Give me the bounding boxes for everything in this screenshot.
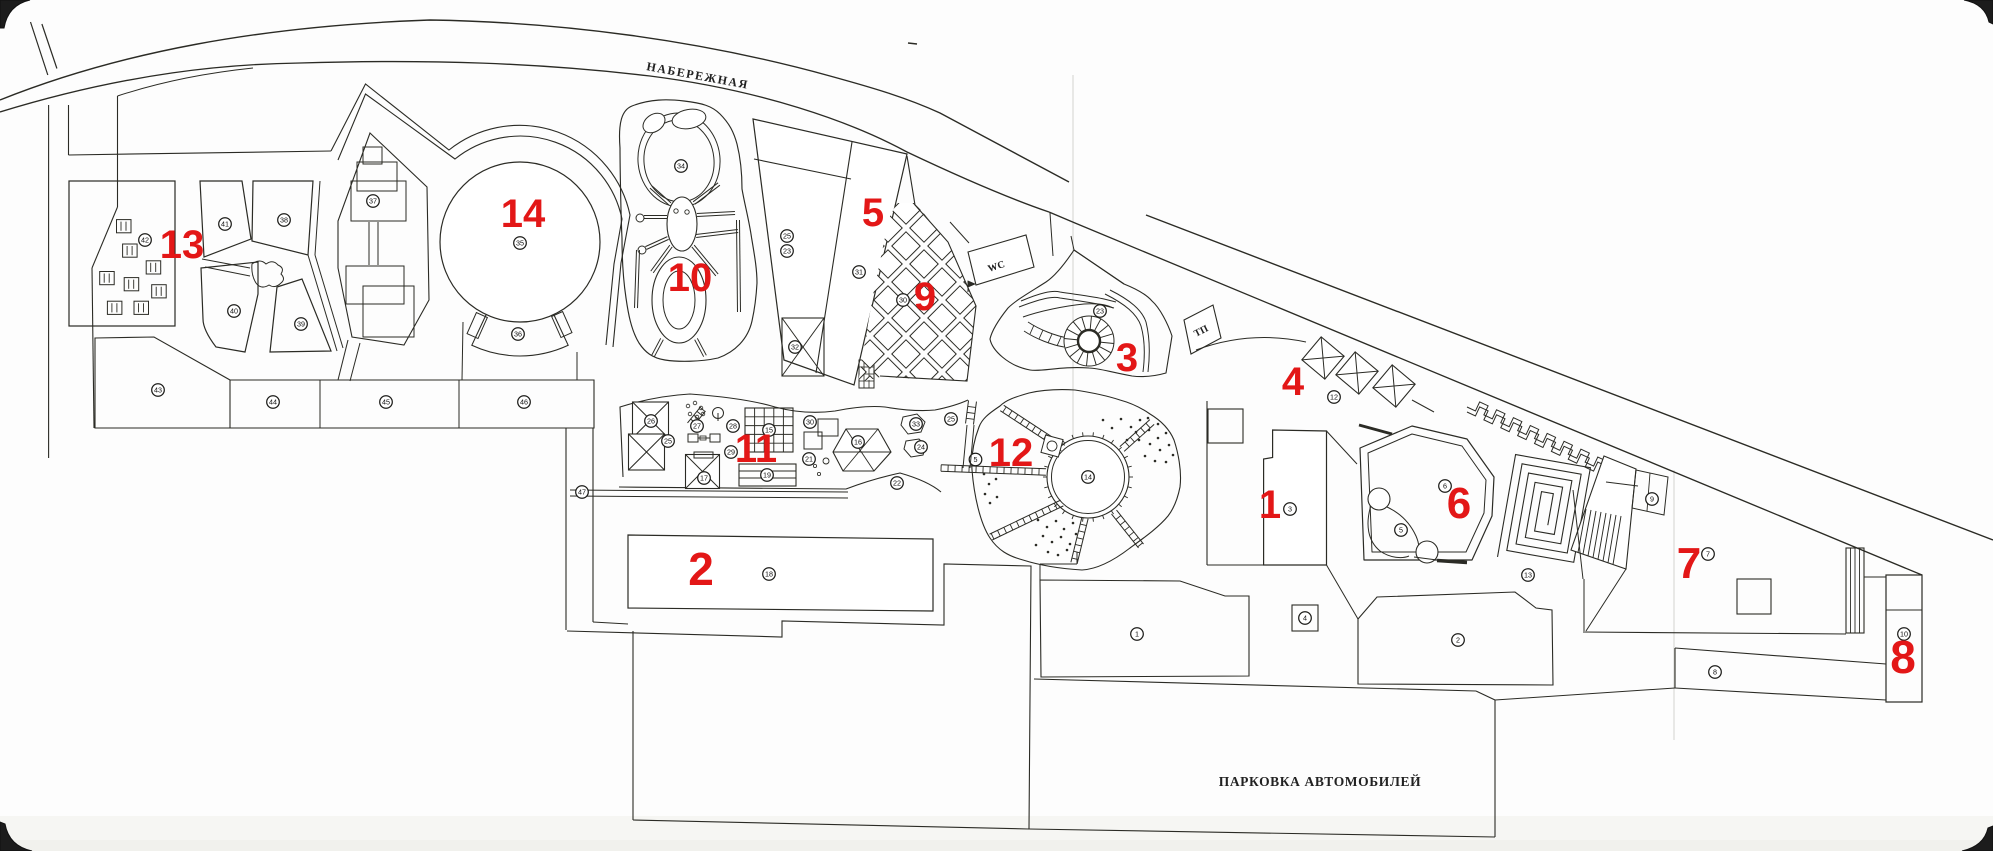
svg-text:3: 3	[1288, 505, 1292, 514]
svg-text:22: 22	[893, 479, 901, 488]
svg-text:29: 29	[727, 448, 735, 457]
svg-text:46: 46	[520, 398, 528, 407]
svg-text:45: 45	[382, 398, 390, 407]
svg-text:4: 4	[1282, 360, 1305, 404]
svg-text:9: 9	[914, 275, 936, 319]
svg-text:17: 17	[700, 474, 708, 483]
svg-text:42: 42	[141, 236, 149, 245]
svg-text:26: 26	[647, 417, 655, 426]
svg-text:13: 13	[160, 223, 205, 267]
svg-text:2: 2	[1456, 636, 1460, 645]
svg-text:41: 41	[221, 220, 229, 229]
svg-text:47: 47	[578, 488, 586, 497]
svg-text:3: 3	[1116, 336, 1138, 380]
svg-text:5: 5	[1399, 526, 1403, 535]
svg-text:4: 4	[1303, 614, 1307, 623]
svg-text:38: 38	[280, 216, 288, 225]
svg-text:24: 24	[917, 443, 925, 452]
svg-text:5: 5	[862, 191, 884, 235]
svg-text:39: 39	[297, 320, 305, 329]
svg-text:7: 7	[1677, 539, 1701, 588]
svg-text:8: 8	[1713, 668, 1717, 677]
svg-text:12: 12	[989, 431, 1034, 475]
svg-text:30: 30	[806, 418, 814, 427]
svg-text:13: 13	[1524, 571, 1532, 580]
svg-text:34: 34	[677, 162, 685, 171]
svg-text:6: 6	[1447, 479, 1471, 528]
svg-text:36: 36	[514, 330, 522, 339]
svg-text:25: 25	[664, 437, 672, 446]
svg-text:33: 33	[912, 420, 920, 429]
svg-text:25: 25	[783, 232, 791, 241]
svg-text:37: 37	[369, 197, 377, 206]
svg-text:44: 44	[269, 398, 277, 407]
svg-text:7: 7	[1706, 550, 1710, 559]
svg-text:30: 30	[899, 296, 907, 305]
svg-text:40: 40	[230, 307, 238, 316]
svg-text:1: 1	[1259, 483, 1281, 527]
svg-text:12: 12	[1330, 393, 1338, 402]
svg-text:5: 5	[974, 455, 978, 464]
svg-text:19: 19	[763, 471, 771, 480]
svg-text:16: 16	[854, 438, 862, 447]
svg-text:9: 9	[1650, 495, 1654, 504]
svg-text:43: 43	[154, 386, 162, 395]
svg-text:25: 25	[947, 415, 955, 424]
svg-text:10: 10	[668, 256, 713, 300]
svg-text:31: 31	[855, 268, 863, 277]
svg-text:21: 21	[805, 455, 813, 464]
svg-text:27: 27	[693, 422, 701, 431]
svg-text:8: 8	[1890, 631, 1916, 683]
svg-text:18: 18	[765, 570, 773, 579]
svg-text:2: 2	[688, 543, 714, 595]
svg-text:32: 32	[791, 343, 799, 352]
svg-text:23: 23	[783, 247, 791, 256]
svg-text:35: 35	[516, 239, 524, 248]
svg-text:14: 14	[1084, 473, 1092, 482]
svg-text:ПАРКОВКА АВТОМОБИЛЕЙ: ПАРКОВКА АВТОМОБИЛЕЙ	[1219, 774, 1422, 789]
svg-text:1: 1	[1135, 630, 1139, 639]
svg-text:14: 14	[501, 192, 546, 236]
svg-text:23: 23	[1096, 307, 1104, 316]
svg-text:11: 11	[735, 427, 777, 471]
